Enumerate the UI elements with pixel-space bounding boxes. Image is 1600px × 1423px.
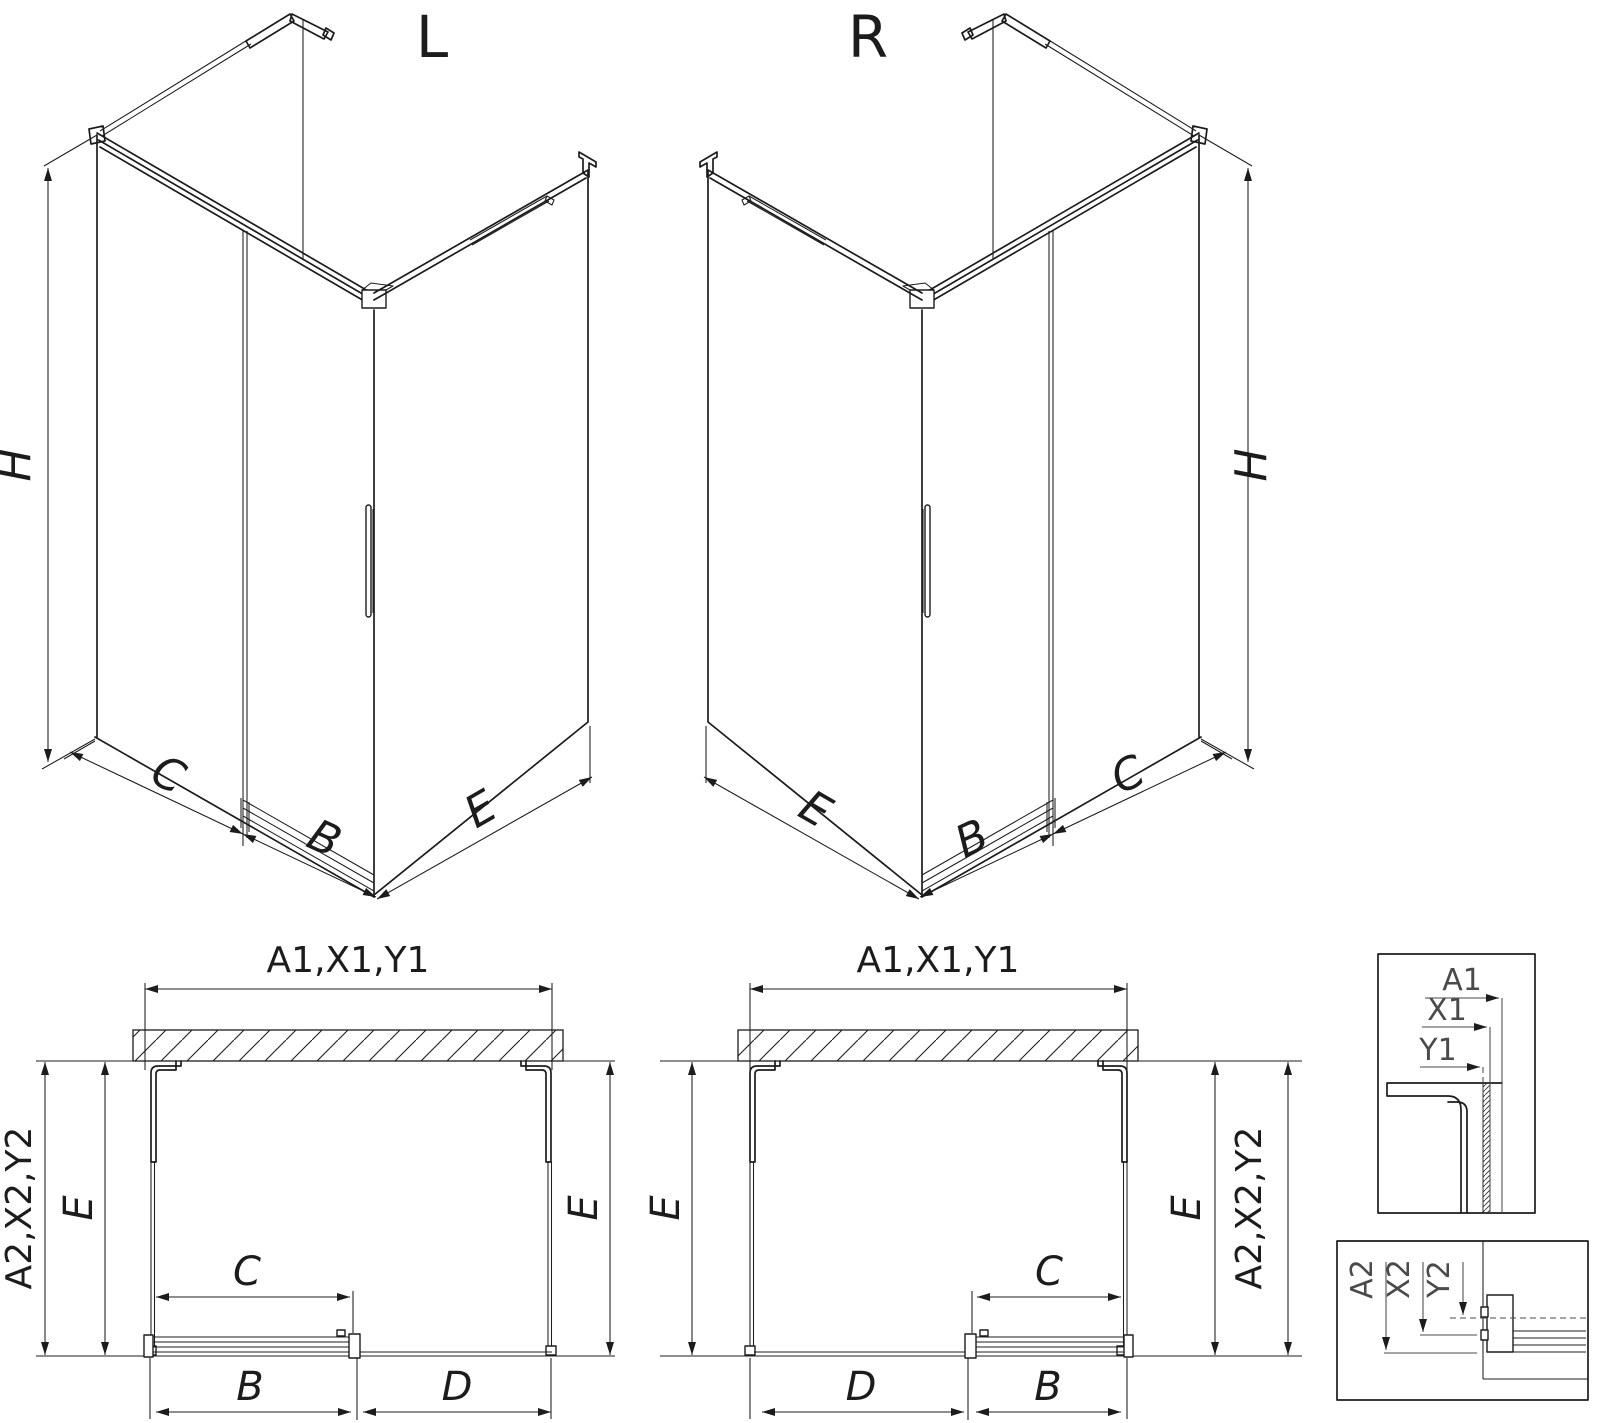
glass-panel-section	[1483, 1083, 1490, 1213]
door-stop-block	[965, 1334, 976, 1358]
plan-right-dim-a2-label: A2,X2,Y2	[1229, 1127, 1270, 1290]
plan-view-right: A1,X1,Y1 C D B E E A2,X2,Y2	[643, 940, 1302, 1420]
iso-view-left: L H C B E	[0, 3, 596, 899]
rail-side-lines	[1513, 1331, 1586, 1352]
right-wall-profile	[521, 1061, 551, 1162]
right-wall-profile	[1098, 1061, 1127, 1162]
detail-top-x1-label: X1	[1427, 993, 1467, 1028]
door-roller-block	[337, 1330, 345, 1336]
plan-right-dim-e-right-label: E	[1164, 1195, 1210, 1221]
iso-left-dim-c-label: C	[143, 745, 193, 804]
plan-left-dim-b-label: B	[236, 1364, 263, 1410]
left-wall-foot	[745, 1346, 755, 1355]
door-rail-end-block	[144, 1335, 153, 1357]
right-wall-foot	[546, 1346, 556, 1355]
plan-view-left: A1,X1,Y1 C B D A2,X2,Y2 E E	[0, 940, 615, 1420]
plan-left-dim-e-left-label: E	[56, 1195, 102, 1221]
detail-view-top: A1 X1 Y1	[1378, 954, 1535, 1213]
iso-view-right: R H C B E	[700, 3, 1277, 899]
door-roller-block	[980, 1330, 988, 1336]
plan-left-dim-a1-label: A1,X1,Y1	[267, 940, 430, 981]
plan-left-dim-a2-label: A2,X2,Y2	[0, 1127, 40, 1290]
dim-ext-bd	[750, 1358, 1127, 1419]
rail-block-2	[1481, 1330, 1488, 1340]
iso-right-dim-h-label: H	[1226, 448, 1277, 481]
left-wall-profile	[151, 1061, 181, 1162]
plan-right-dim-c-label: C	[1035, 1249, 1063, 1295]
right-wall-glass	[548, 1162, 552, 1346]
detail-bottom-y2-label: Y2	[1422, 1260, 1457, 1298]
door-stop-block	[349, 1334, 360, 1358]
iso-left-dim-h-label: H	[0, 448, 41, 481]
dim-ext-bd	[150, 1358, 551, 1419]
plan-right-dim-b-label: B	[1034, 1364, 1061, 1410]
rail-block-1	[1481, 1307, 1488, 1317]
detail-view-bottom: A2 X2 Y2	[1337, 1241, 1588, 1400]
plan-right-dim-a1-label: A1,X1,Y1	[857, 940, 1020, 981]
door-rail-end-block	[1124, 1335, 1133, 1357]
left-wall-glass	[750, 1162, 754, 1346]
iso-right-title: R	[848, 3, 888, 71]
plan-left-dim-c-label: C	[233, 1249, 261, 1295]
wall-hatch-right-plan	[738, 1030, 1138, 1061]
plan-left-dim-e-right-label: E	[561, 1195, 607, 1221]
shower-enclosure-technical-drawing: L H C B E R H C B E A1,X1,Y1	[0, 0, 1600, 1423]
iso-right-dim-c-label: C	[1103, 745, 1153, 804]
iso-left-title: L	[416, 3, 448, 71]
door-rail-lines	[754, 1337, 1126, 1352]
wall-hatch-left-plan	[133, 1030, 563, 1061]
left-wall-profile	[750, 1061, 780, 1162]
right-wall-glass	[1124, 1162, 1128, 1346]
door-rail-section	[1487, 1295, 1513, 1352]
detail-bottom-a2-label: A2	[1345, 1259, 1380, 1299]
left-wall-glass	[151, 1162, 155, 1346]
plan-right-dim-e-left-label: E	[643, 1195, 689, 1221]
plan-left-dim-d-label: D	[442, 1364, 473, 1410]
detail-bottom-x2-label: X2	[1382, 1259, 1417, 1299]
plan-right-dim-d-label: D	[846, 1364, 877, 1410]
detail-top-y1-label: Y1	[1418, 1033, 1456, 1068]
